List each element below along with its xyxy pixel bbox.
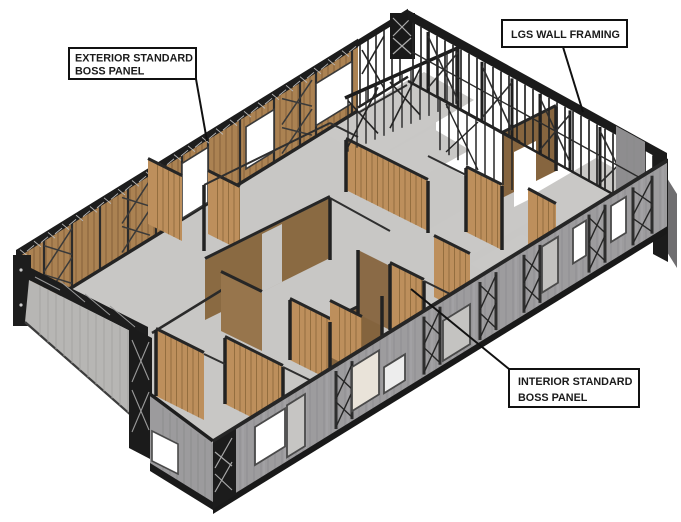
svg-text:BOSS PANEL: BOSS PANEL [75,66,145,78]
svg-text:BOSS PANEL: BOSS PANEL [518,392,588,404]
svg-text:INTERIOR STANDARD: INTERIOR STANDARD [518,376,633,388]
svg-text:EXTERIOR STANDARD: EXTERIOR STANDARD [75,53,193,65]
svg-text:LGS WALL FRAMING: LGS WALL FRAMING [511,29,620,41]
